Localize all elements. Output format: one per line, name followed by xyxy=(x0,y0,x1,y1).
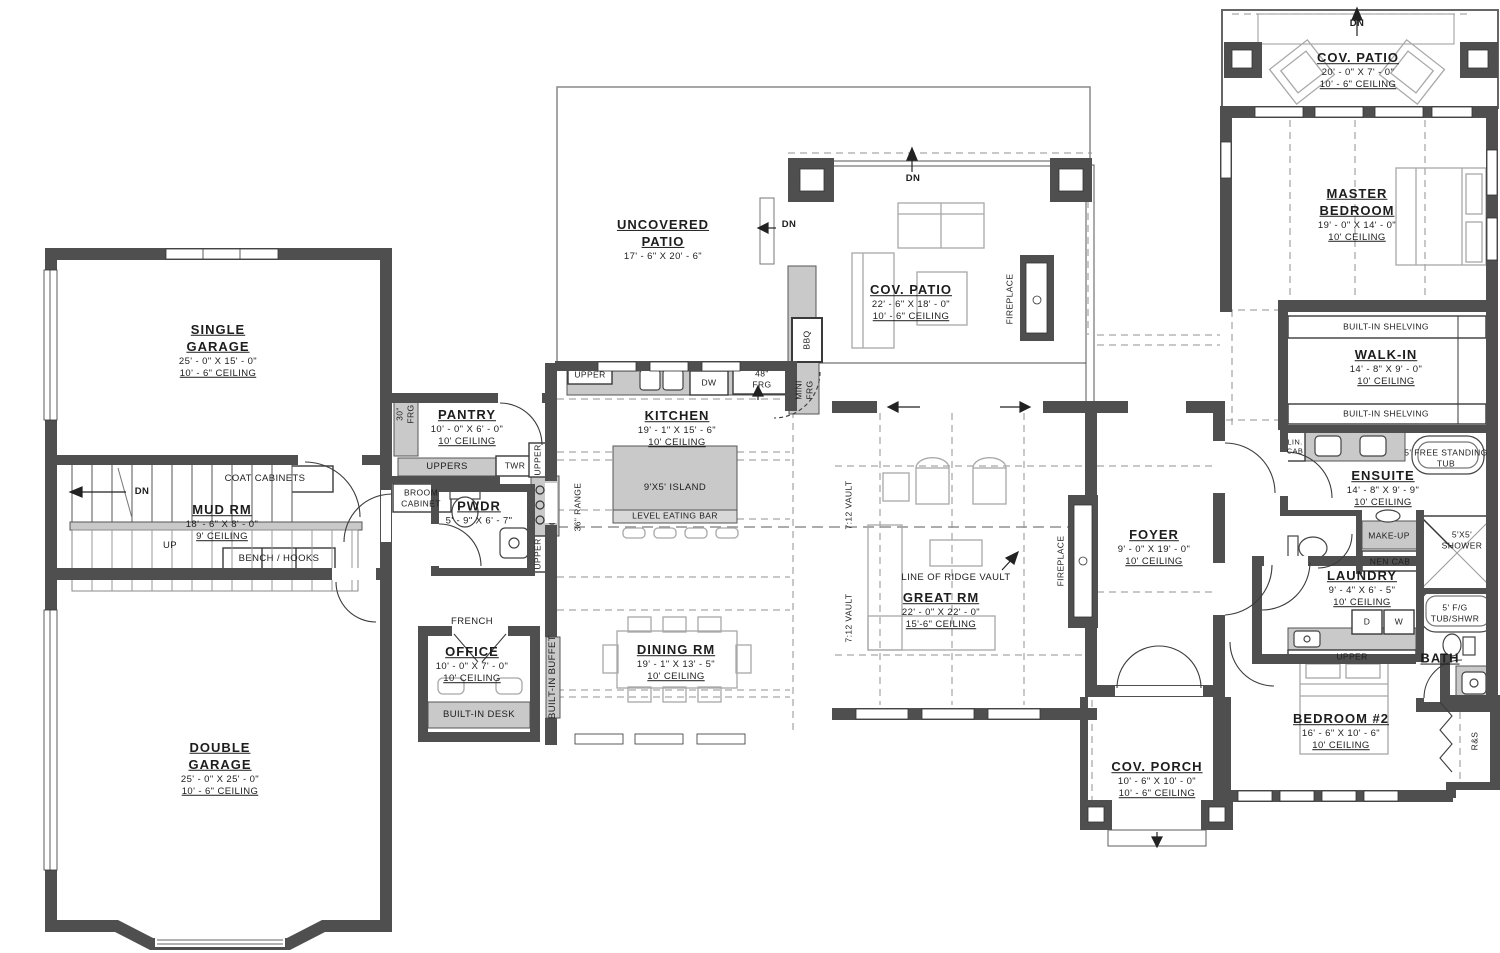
upper-cab-label: UPPER xyxy=(533,444,544,475)
free-tub-label: 5' FREE STANDING TUB xyxy=(1402,447,1490,468)
room-label-cov-porch: COV. PORCH 10' - 6" X 10' - 0" 10' - 6" … xyxy=(1111,759,1202,801)
room-label-great-rm: GREAT RM 22' - 0" X 22' - 0" 15'-6" CEIL… xyxy=(902,590,980,632)
uppers-label: UPPERS xyxy=(426,461,467,473)
room-ceiling: 10' CEILING xyxy=(1118,556,1191,568)
stairs-dn-label: DN xyxy=(135,486,150,498)
room-title: COV. PATIO xyxy=(1317,50,1399,67)
room-title: DOUBLE GARAGE xyxy=(164,740,276,774)
ridge-vault-label: LINE OF RIDGE VAULT xyxy=(901,572,1010,584)
room-label-double-garage: DOUBLE GARAGE 25' - 0" X 25' - 0" 10' - … xyxy=(164,740,276,798)
island-label: 9'X5' ISLAND xyxy=(644,482,706,494)
dryer-label: D xyxy=(1364,617,1371,628)
room-title: WALK-IN xyxy=(1350,347,1423,364)
room-dims: 25' - 0" X 15' - 0" xyxy=(162,356,274,368)
frg-48-label: 48" FRG xyxy=(745,368,779,389)
room-label-dining-rm: DINING RM 19' - 1" X 13' - 5" 10' CEILIN… xyxy=(637,642,715,684)
room-ceiling: 10' CEILING xyxy=(1293,740,1389,752)
frg-30-label: 30" FRG xyxy=(394,397,415,431)
room-label-bath: BATH xyxy=(1420,651,1459,668)
room-dims: 20' - 0" X 7' - 0" xyxy=(1317,67,1399,79)
room-ceiling: 10' CEILING xyxy=(637,671,715,683)
dw-label: DW xyxy=(702,378,717,389)
room-title: COV. PORCH xyxy=(1111,759,1202,776)
bbq-label: BBQ xyxy=(802,330,813,349)
room-dims: 22' - 6" X 18' - 0" xyxy=(870,299,952,311)
room-title: UNCOVERED PATIO xyxy=(598,217,728,251)
lin-cab-label: LIN. CAB xyxy=(1281,438,1309,457)
room-title: GREAT RM xyxy=(902,590,980,607)
room-title: MUD RM xyxy=(186,502,259,519)
patio-fireplace-label: FIREPLACE xyxy=(1005,274,1016,325)
room-title: PANTRY xyxy=(431,407,504,424)
great-fireplace-label: FIREPLACE xyxy=(1056,536,1067,587)
room-ceiling: 9' CEILING xyxy=(186,531,259,543)
labels-layer: SINGLE GARAGE 25' - 0" X 15' - 0" 10' - … xyxy=(0,0,1500,953)
room-ceiling: 10' CEILING xyxy=(1350,376,1423,388)
room-ceiling: 15'-6" CEILING xyxy=(902,619,980,631)
room-ceiling: 10' - 6" CEILING xyxy=(164,786,276,798)
eating-bar-label: LEVEL EATING BAR xyxy=(632,511,718,522)
top-patio-dn-label: DN xyxy=(1350,18,1365,30)
coat-cabinets-label: COAT CABINETS xyxy=(225,473,306,485)
builtin-desk-label: BUILT-IN DESK xyxy=(443,709,515,721)
builtin-shelving-label: BUILT-IN SHELVING xyxy=(1343,322,1429,333)
room-dims: 17' - 6" X 20' - 6" xyxy=(598,251,728,263)
room-label-cov-patio: COV. PATIO 22' - 6" X 18' - 0" 10' - 6" … xyxy=(870,282,952,324)
range-label: 36" RANGE xyxy=(573,483,584,532)
floor-plan: SINGLE GARAGE 25' - 0" X 15' - 0" 10' - … xyxy=(0,0,1500,953)
room-ceiling: 10' CEILING xyxy=(638,437,716,449)
upper-laundry-label: UPPER xyxy=(1336,652,1367,663)
room-dims: 18' - 6" X 8' - 0" xyxy=(186,519,259,531)
room-ceiling: 10' CEILING xyxy=(1305,232,1409,244)
room-label-ensuite: ENSUITE 14' - 8" X 9' - 9" 10' CEILING xyxy=(1347,468,1420,510)
room-title: MASTER BEDROOM xyxy=(1305,186,1409,220)
room-ceiling: 10' - 6" CEILING xyxy=(870,311,952,323)
room-title: OFFICE xyxy=(436,644,509,661)
room-dims: 10' - 0" X 7' - 0" xyxy=(436,661,509,673)
twr-label: TWR xyxy=(505,461,526,472)
builtin-shelving-label: BUILT-IN SHELVING xyxy=(1343,409,1429,420)
upper-kitchen-label: UPPER xyxy=(574,370,605,381)
room-dims: 25' - 0" X 25' - 0" xyxy=(164,774,276,786)
shower-label: 5'X5' SHOWER xyxy=(1434,529,1490,550)
room-label-foyer: FOYER 9' - 0" X 19' - 0" 10' CEILING xyxy=(1118,527,1191,569)
room-title: BATH xyxy=(1420,651,1459,668)
room-label-cov-patio-top: COV. PATIO 20' - 0" X 7' - 0" 10' - 6" C… xyxy=(1317,50,1399,92)
vault-label: 7:12 VAULT xyxy=(844,593,855,642)
room-dims: 19' - 1" X 13' - 5" xyxy=(637,659,715,671)
washer-label: W xyxy=(1395,617,1403,628)
room-label-pwdr: PWDR 5' - 9" X 6' - 7" xyxy=(446,498,513,527)
room-title: BEDROOM #2 xyxy=(1293,711,1389,728)
room-dims: 10' - 6" X 10' - 0" xyxy=(1111,776,1202,788)
room-label-pantry: PANTRY 10' - 0" X 6' - 0" 10' CEILING xyxy=(431,407,504,449)
room-label-master-bedroom: MASTER BEDROOM 19' - 0" X 14' - 0" 10' C… xyxy=(1305,186,1409,244)
room-dims: 9' - 0" X 19' - 0" xyxy=(1118,544,1191,556)
room-dims: 9' - 4" X 6' - 5" xyxy=(1327,585,1397,597)
room-label-laundry: LAUNDRY 9' - 4" X 6' - 5" 10' CEILING xyxy=(1327,568,1397,610)
room-dims: 10' - 0" X 6' - 0" xyxy=(431,424,504,436)
room-dims: 19' - 1" X 15' - 6" xyxy=(638,425,716,437)
room-dims: 22' - 0" X 22' - 0" xyxy=(902,607,980,619)
upper-cab-label: UPPER xyxy=(533,538,544,569)
stairs-up-label: UP xyxy=(163,540,177,552)
french-door-label: FRENCH xyxy=(451,616,493,628)
vault-label: 7:12 VAULT xyxy=(844,480,855,529)
room-dims: 5' - 9" X 6' - 7" xyxy=(446,515,513,527)
room-title: ENSUITE xyxy=(1347,468,1420,485)
linen-cab-label: NEN CAB xyxy=(1370,557,1411,568)
room-dims: 14' - 8" X 9' - 9" xyxy=(1347,485,1420,497)
makeup-label: MAKE-UP xyxy=(1368,531,1410,542)
room-title: LAUNDRY xyxy=(1327,568,1397,585)
room-dims: 16' - 6" X 10' - 6" xyxy=(1293,728,1389,740)
bench-hooks-label: BENCH / HOOKS xyxy=(239,553,320,565)
room-title: KITCHEN xyxy=(638,408,716,425)
room-ceiling: 10' CEILING xyxy=(436,673,509,685)
room-ceiling: 10' - 6" CEILING xyxy=(162,368,274,380)
room-label-uncovered-patio: UNCOVERED PATIO 17' - 6" X 20' - 6" xyxy=(598,217,728,263)
room-label-walk-in: WALK-IN 14' - 8" X 9' - 0" 10' CEILING xyxy=(1350,347,1423,389)
room-title: COV. PATIO xyxy=(870,282,952,299)
patio-dn-label: DN xyxy=(906,173,921,185)
fg-tub-label: 5' F/G TUB/SHWR xyxy=(1424,602,1486,623)
room-title: DINING RM xyxy=(637,642,715,659)
patio-side-dn-label: DN xyxy=(782,219,797,231)
rod-shelf-label: R&S xyxy=(1470,732,1481,751)
room-title: SINGLE GARAGE xyxy=(162,322,274,356)
room-label-mud-rm: MUD RM 18' - 6" X 8' - 0" 9' CEILING xyxy=(186,502,259,544)
room-title: FOYER xyxy=(1118,527,1191,544)
room-dims: 19' - 0" X 14' - 0" xyxy=(1305,220,1409,232)
mini-frg-label: MINI FRG xyxy=(793,370,814,410)
room-ceiling: 10' CEILING xyxy=(1327,597,1397,609)
room-ceiling: 10' - 6" CEILING xyxy=(1111,788,1202,800)
broom-cabinet-label: BROOM CABINET xyxy=(390,487,452,508)
room-ceiling: 10' CEILING xyxy=(431,436,504,448)
room-dims: 14' - 8" X 9' - 0" xyxy=(1350,364,1423,376)
room-label-single-garage: SINGLE GARAGE 25' - 0" X 15' - 0" 10' - … xyxy=(162,322,274,380)
room-title: PWDR xyxy=(446,498,513,515)
builtin-buffet-label: BUILT-IN BUFFET xyxy=(547,635,559,719)
room-ceiling: 10' CEILING xyxy=(1347,497,1420,509)
room-label-office: OFFICE 10' - 0" X 7' - 0" 10' CEILING xyxy=(436,644,509,686)
room-label-bedroom-2: BEDROOM #2 16' - 6" X 10' - 6" 10' CEILI… xyxy=(1293,711,1389,753)
room-ceiling: 10' - 6" CEILING xyxy=(1317,79,1399,91)
room-label-kitchen: KITCHEN 19' - 1" X 15' - 6" 10' CEILING xyxy=(638,408,716,450)
